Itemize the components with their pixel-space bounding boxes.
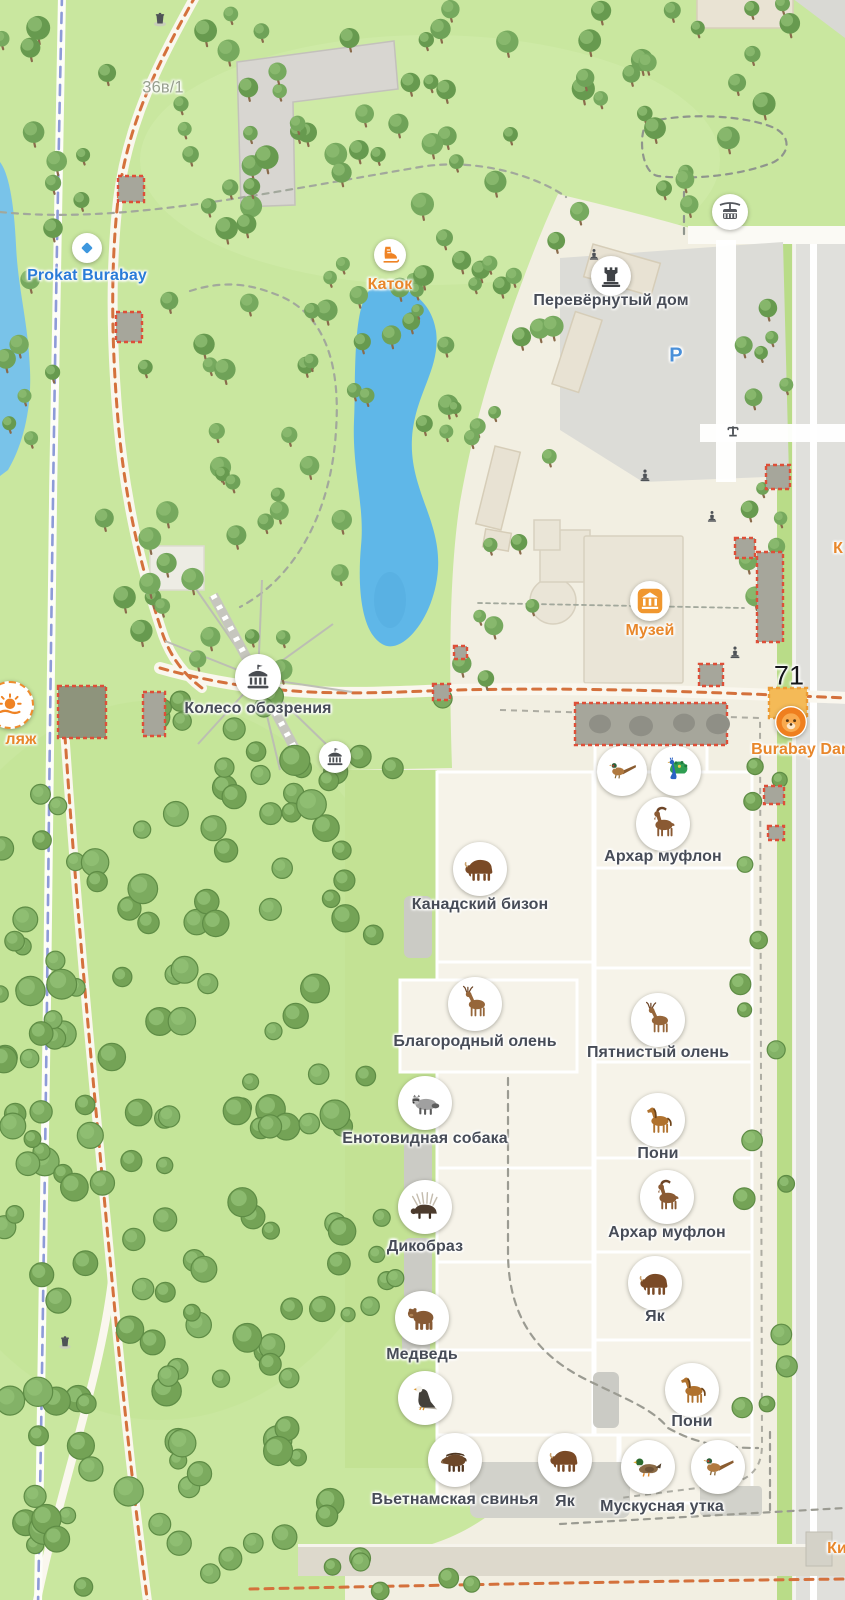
prokat-burabay-label[interactable]: Prokat Burabay xyxy=(27,267,147,285)
poni-2-label[interactable]: Пони xyxy=(671,1413,712,1431)
yak-2-animal-icon[interactable] xyxy=(538,1433,592,1487)
pyatnisty-olen-animal-icon[interactable] xyxy=(631,993,685,1047)
statue-icon xyxy=(588,248,601,266)
burabay-dan-label[interactable]: Burabay Dan xyxy=(751,741,845,759)
vietnamskaya-svinya-label[interactable]: Вьетнамская свинья xyxy=(372,1491,539,1509)
yak-2-label[interactable]: Як xyxy=(555,1493,575,1511)
poni-2-animal-icon[interactable] xyxy=(665,1363,719,1417)
statue-icon xyxy=(638,469,652,488)
yak-1-animal-icon[interactable] xyxy=(628,1256,682,1310)
poi-k-right-label[interactable]: К xyxy=(833,540,843,558)
arkhar-muflon-2-animal-icon[interactable] xyxy=(640,1170,694,1224)
koleso-obozreniya-label[interactable]: Колесо обозрения xyxy=(184,700,331,718)
dikobraz-animal-icon[interactable] xyxy=(398,1180,452,1234)
muzei-icon[interactable] xyxy=(630,581,670,621)
muskusnaya-utka-label[interactable]: Мускусная утка xyxy=(600,1498,724,1516)
cable-car-icon[interactable] xyxy=(712,194,748,230)
parking-label[interactable]: P xyxy=(669,345,682,368)
kanadsky-bizon-animal-icon[interactable] xyxy=(453,842,507,896)
plyazh-icon[interactable] xyxy=(0,681,34,729)
perevernuty-dom-label[interactable]: Перевёрнутый дом xyxy=(533,292,688,310)
burabay-dan-icon[interactable] xyxy=(775,706,807,738)
blagorodny-olen-label[interactable]: Благородный олень xyxy=(393,1033,556,1051)
pheasant-bottom-animal-icon[interactable] xyxy=(691,1440,745,1494)
statue-icon xyxy=(706,510,719,528)
vietnamskaya-svinya-animal-icon[interactable] xyxy=(428,1433,482,1487)
kiosk-label[interactable]: Ки xyxy=(827,1540,845,1558)
plyazh-label[interactable]: ляж xyxy=(5,731,36,749)
eagle-animal-icon[interactable] xyxy=(398,1371,452,1425)
map-canvas[interactable]: 36в/1Prokat BurabayКатокПеревёрнутый дом… xyxy=(0,0,845,1600)
pyatnisty-olen-label[interactable]: Пятнистый олень xyxy=(587,1044,729,1062)
katok-icon[interactable] xyxy=(374,239,406,271)
blagorodny-olen-animal-icon[interactable] xyxy=(448,977,502,1031)
muzei-label[interactable]: Музей xyxy=(626,622,675,640)
pheasant-top-animal-icon[interactable] xyxy=(597,746,647,796)
muskusnaya-utka-animal-icon[interactable] xyxy=(621,1440,675,1494)
poi-overlay: 36в/1Prokat BurabayКатокПеревёрнутый дом… xyxy=(0,0,845,1600)
arkhar-muflon-1-animal-icon[interactable] xyxy=(636,797,690,851)
medved-animal-icon[interactable] xyxy=(395,1291,449,1345)
medved-label[interactable]: Медведь xyxy=(386,1346,458,1364)
arkhar-muflon-2-label[interactable]: Архар муфлон xyxy=(608,1224,726,1242)
arkhar-muflon-1-label[interactable]: Архар муфлон xyxy=(604,848,722,866)
address-36v1-label[interactable]: 36в/1 xyxy=(142,79,183,98)
poni-1-label[interactable]: Пони xyxy=(637,1145,678,1163)
poni-1-animal-icon[interactable] xyxy=(631,1093,685,1147)
kanadsky-bizon-label[interactable]: Канадский бизон xyxy=(412,896,549,914)
koleso-obozreniya-icon[interactable] xyxy=(235,654,281,700)
barrier-icon xyxy=(726,424,741,444)
enotovidnaya-sobaka-label[interactable]: Енотовидная собака xyxy=(342,1130,507,1148)
trash-icon xyxy=(58,1335,73,1355)
enotovidnaya-sobaka-animal-icon[interactable] xyxy=(398,1076,452,1130)
attraction-icon[interactable] xyxy=(319,741,351,773)
trash-icon xyxy=(152,12,168,33)
katok-label[interactable]: Каток xyxy=(368,276,413,294)
dikobraz-label[interactable]: Дикобраз xyxy=(387,1238,463,1256)
yak-1-label[interactable]: Як xyxy=(645,1308,665,1326)
stop-71-label[interactable]: 71 xyxy=(774,661,804,692)
peacock-animal-icon[interactable] xyxy=(651,746,701,796)
statue-icon xyxy=(728,646,742,665)
prokat-burabay-icon[interactable] xyxy=(72,233,102,263)
